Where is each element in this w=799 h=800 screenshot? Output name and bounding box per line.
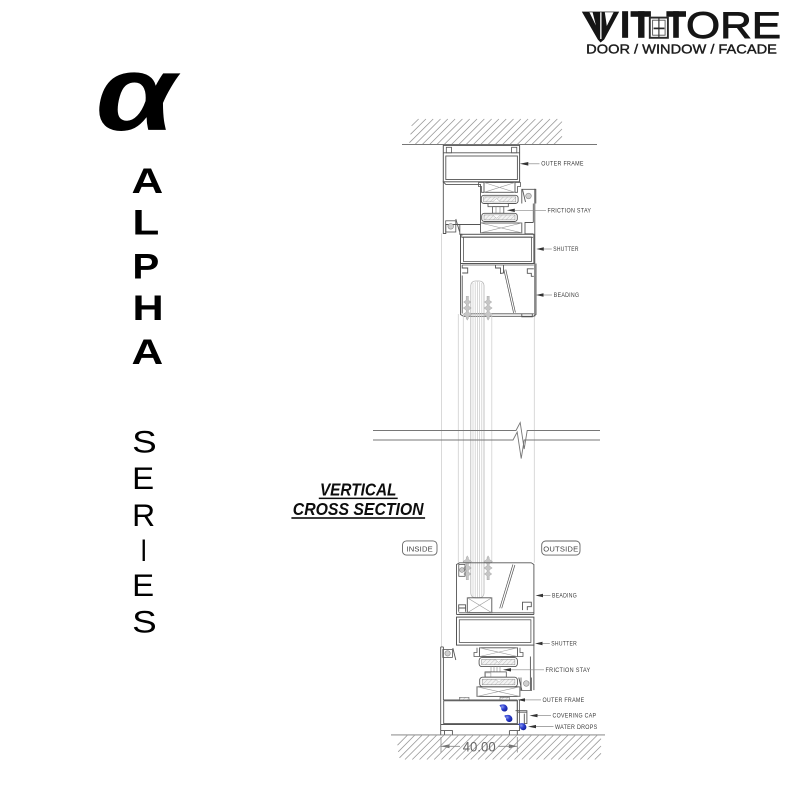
svg-text:DOOR / WINDOW / FACADE: DOOR / WINDOW / FACADE <box>586 42 777 57</box>
svg-text:OUTSIDE: OUTSIDE <box>543 544 578 553</box>
svg-text:I: I <box>140 532 147 568</box>
svg-text:BEADING: BEADING <box>552 593 577 600</box>
svg-text:E: E <box>132 460 154 496</box>
svg-text:WATER DROPS: WATER DROPS <box>555 724 598 731</box>
svg-text:OUTER FRAME: OUTER FRAME <box>543 697 585 704</box>
svg-text:A: A <box>132 161 164 201</box>
svg-text:SHUTTER: SHUTTER <box>553 246 579 253</box>
svg-text:FRICTION STAY: FRICTION STAY <box>546 667 591 674</box>
svg-text:L: L <box>132 203 159 243</box>
svg-text:R: R <box>132 497 155 533</box>
svg-text:A: A <box>132 332 164 372</box>
svg-text:OUTER FRAME: OUTER FRAME <box>541 161 584 168</box>
svg-text:S: S <box>132 424 157 460</box>
svg-text:INSIDE: INSIDE <box>406 544 433 553</box>
svg-text:40.00: 40.00 <box>463 739 496 755</box>
svg-text:P: P <box>132 247 159 287</box>
svg-text:H: H <box>133 288 164 328</box>
svg-text:S: S <box>132 604 157 640</box>
svg-text:BEADING: BEADING <box>554 292 580 299</box>
svg-text:VERTICAL: VERTICAL <box>320 480 397 500</box>
svg-text:ORE: ORE <box>686 5 781 46</box>
svg-text:CROSS SECTION: CROSS SECTION <box>293 499 424 519</box>
svg-text:α: α <box>96 34 181 154</box>
svg-text:COVERING CAP: COVERING CAP <box>553 713 597 720</box>
svg-text:E: E <box>132 567 154 603</box>
svg-text:FRICTION STAY: FRICTION STAY <box>548 207 592 214</box>
svg-text:SHUTTER: SHUTTER <box>551 641 577 648</box>
